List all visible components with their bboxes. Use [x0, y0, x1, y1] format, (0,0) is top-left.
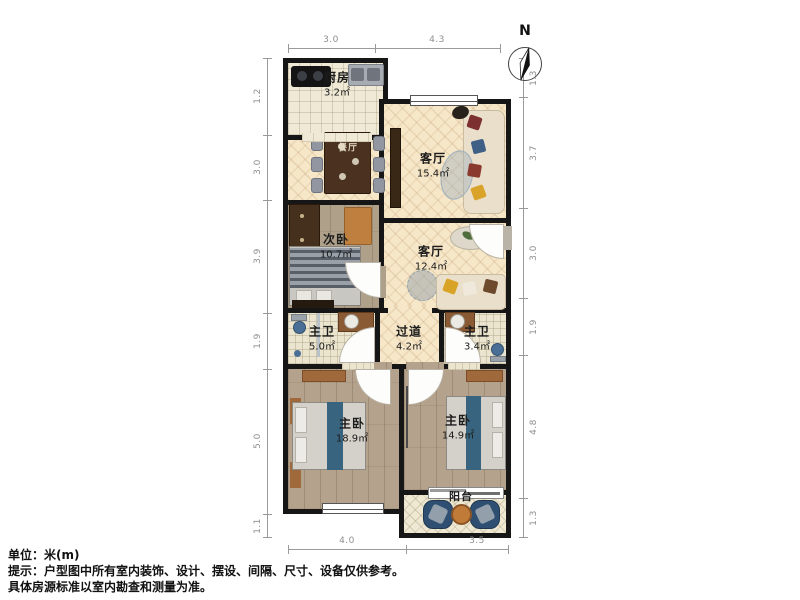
entry-threshold — [503, 226, 512, 250]
window-master-left — [322, 503, 384, 514]
dim-label: 3.7 — [529, 145, 539, 161]
dim-label: 5.0 — [253, 433, 263, 449]
dim-label: 3.0 — [253, 159, 263, 175]
pillow — [467, 163, 482, 178]
dining-chair — [373, 178, 385, 193]
wardrobe-handle — [300, 214, 304, 218]
dim-label: 4.3 — [429, 35, 445, 45]
washbasin — [344, 314, 359, 329]
burner — [297, 71, 307, 81]
wardrobe-handle — [300, 238, 304, 242]
room-name: 客厅 — [417, 152, 449, 168]
dim-label: 4.8 — [529, 419, 539, 435]
floor-drain — [294, 350, 301, 357]
dining-chair — [311, 178, 323, 193]
round-rug — [407, 270, 438, 301]
room-label-living-main: 客厅 15.4㎡ — [417, 152, 449, 181]
sink-basin — [351, 68, 364, 81]
disclaimer-note: 具体房源标准以室内勘查和测量为准。 — [8, 578, 212, 595]
dim-tick — [519, 97, 528, 98]
balcony-table — [451, 504, 472, 525]
dining-chair — [373, 136, 385, 151]
dim-tick — [519, 298, 528, 299]
dim-tick — [288, 44, 289, 53]
dining-chair — [373, 157, 385, 172]
dim-tick — [263, 135, 272, 136]
toilet — [491, 343, 504, 356]
north-compass-icon: N — [502, 20, 548, 90]
dim-label: 4.0 — [339, 536, 355, 546]
dim-label: 3.9 — [253, 248, 263, 264]
dim-label: 3.5 — [469, 536, 485, 546]
room-label-bath-master: 主卫 5.0㎡ — [309, 325, 335, 354]
room-name: 主卧 — [336, 417, 368, 433]
room-label-balcony: 阳台 — [449, 488, 473, 504]
plate — [352, 158, 359, 165]
dim-label: 1.9 — [529, 319, 539, 335]
room-area: 5.0㎡ — [309, 340, 335, 353]
dim-line-top — [288, 48, 500, 49]
dim-tick — [519, 498, 528, 499]
room-label-kitchen: 厨房 3.2㎡ — [324, 71, 350, 100]
dim-tick — [406, 545, 407, 554]
unit-note: 单位：米(m) — [8, 546, 79, 563]
room-label-dining: 餐厅 — [338, 141, 358, 154]
dim-label: 1.2 — [253, 88, 263, 104]
room-name: 主卫 — [309, 325, 335, 341]
pillow — [462, 281, 477, 296]
plate — [339, 173, 346, 180]
dim-tick — [508, 545, 509, 554]
burner — [313, 71, 323, 81]
room-area: 10.7㎡ — [320, 248, 352, 261]
bed-pillow — [492, 402, 503, 428]
room-label-master-right: 主卧 14.9㎡ — [442, 414, 474, 443]
window-living-main — [410, 95, 478, 106]
dim-tick — [500, 44, 501, 53]
room-name: 主卫 — [464, 325, 490, 341]
dim-label: 3.0 — [529, 245, 539, 261]
sink-basin — [367, 68, 380, 81]
floor-plan-canvas: 厨房 3.2㎡ 餐厅 客厅 15.4㎡ 次卧 10.7㎡ 客厅 12.4㎡ 主卫… — [0, 0, 800, 600]
dim-tick — [519, 537, 528, 538]
room-area: 3.4㎡ — [464, 340, 490, 353]
dim-tick — [375, 44, 376, 53]
dim-tick — [263, 514, 272, 515]
dim-tick — [263, 200, 272, 201]
room-label-hallway: 过道 4.2㎡ — [396, 325, 422, 354]
dining-chair — [311, 157, 323, 172]
dim-label: 1.3 — [529, 510, 539, 526]
dim-label: 1.9 — [253, 333, 263, 349]
bench — [292, 300, 334, 308]
room-label-bedroom-second: 次卧 10.7㎡ — [320, 233, 352, 262]
room-label-master-left: 主卧 18.9㎡ — [336, 417, 368, 446]
dresser — [302, 370, 346, 382]
dim-tick — [263, 537, 272, 538]
wardrobe — [466, 370, 503, 382]
room-label-bath-second: 主卫 3.4㎡ — [464, 325, 490, 354]
room-name: 次卧 — [320, 233, 352, 249]
bed-pillow — [492, 432, 503, 458]
disclaimer-tip: 提示：户型图中所有室内装饰、设计、摆设、间隔、尺寸、设备仅供参考。 — [8, 562, 404, 579]
dim-tick — [519, 208, 528, 209]
tv-cabinet — [390, 128, 401, 208]
dim-tick — [263, 58, 272, 59]
room-name: 过道 — [396, 325, 422, 341]
toilet-tank — [291, 314, 307, 321]
north-label: N — [519, 23, 531, 39]
dim-label: 1.1 — [253, 518, 263, 534]
room-name: 客厅 — [415, 245, 447, 261]
dim-tick — [288, 545, 289, 554]
room-name: 主卧 — [442, 414, 474, 430]
toilet-tank — [490, 356, 506, 362]
dim-line-bottom — [288, 549, 509, 550]
dim-tick — [519, 355, 528, 356]
room-area: 14.9㎡ — [442, 429, 474, 442]
opening-living-hallway — [388, 306, 432, 315]
bed-pillow — [295, 407, 307, 433]
room-area: 18.9㎡ — [336, 432, 368, 445]
room-label-living-second: 客厅 12.4㎡ — [415, 245, 447, 274]
dim-tick — [263, 369, 272, 370]
dim-label: 3.0 — [323, 35, 339, 45]
room-area: 12.4㎡ — [415, 260, 447, 273]
room-area: 3.2㎡ — [324, 86, 350, 99]
bed-pillow — [295, 437, 307, 463]
dim-tick — [263, 313, 272, 314]
toilet — [293, 321, 306, 334]
room-area: 4.2㎡ — [396, 340, 422, 353]
room-area: 15.4㎡ — [417, 167, 449, 180]
room-name: 厨房 — [324, 71, 350, 87]
dim-line-left — [267, 58, 268, 538]
